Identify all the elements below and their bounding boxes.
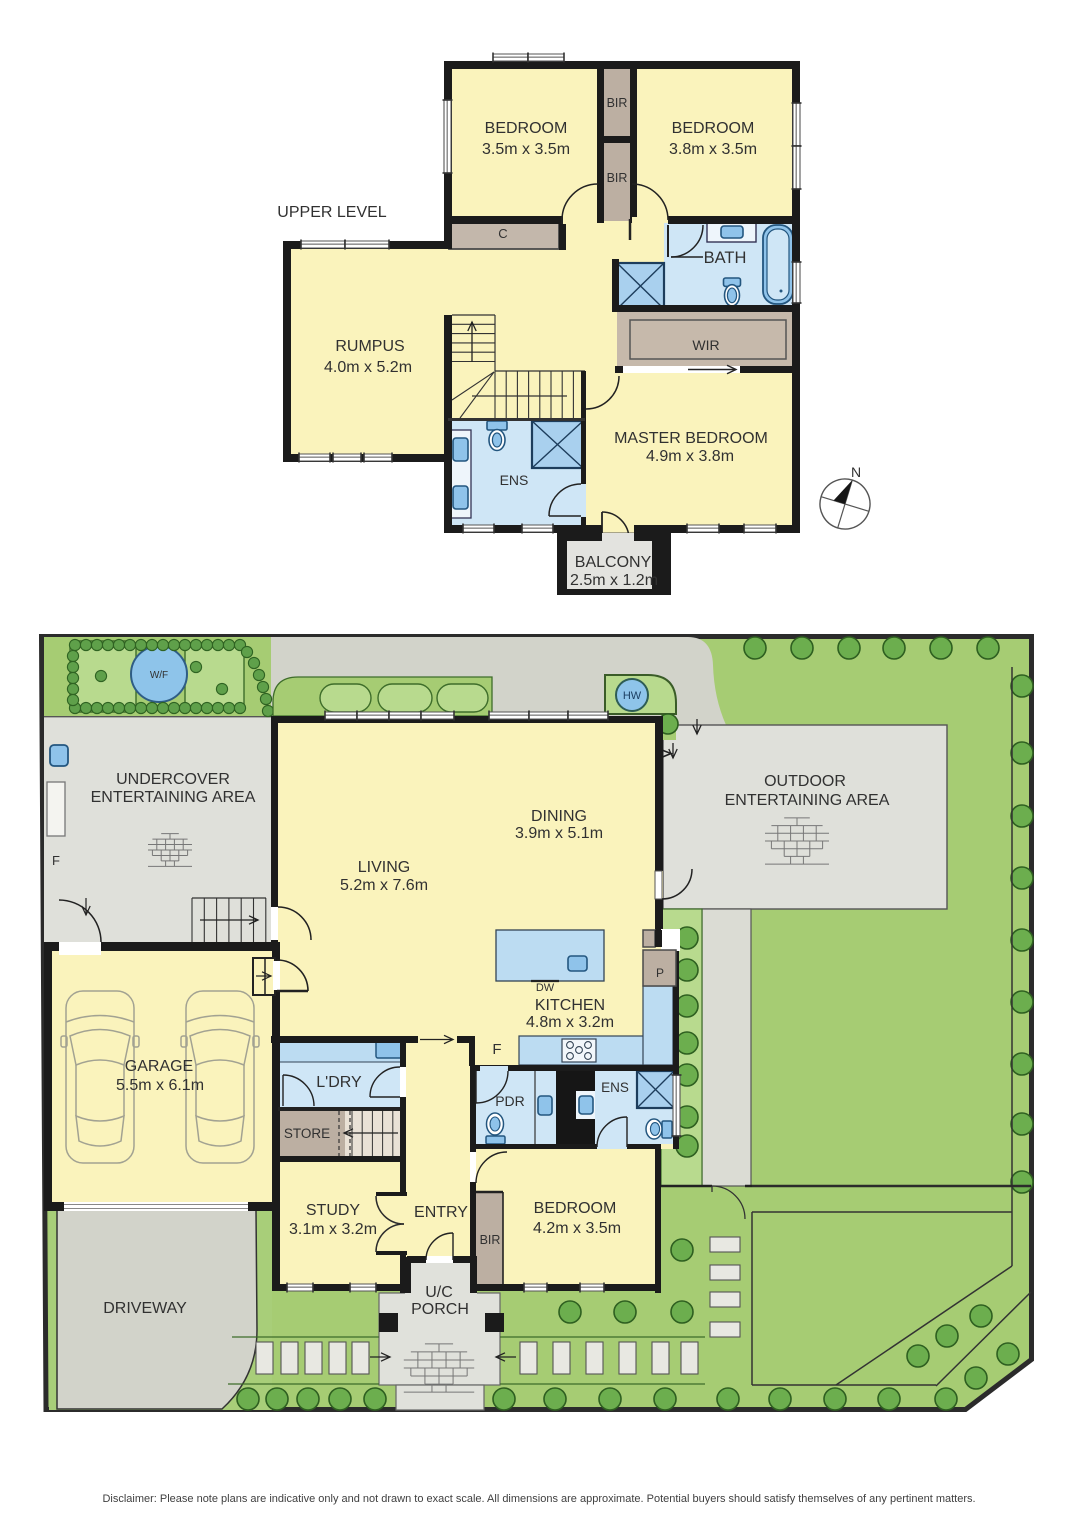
svg-text:ENTRY: ENTRY (414, 1204, 468, 1221)
svg-text:MASTER BEDROOM: MASTER BEDROOM (614, 430, 768, 447)
svg-text:KITCHEN: KITCHEN (535, 997, 605, 1014)
svg-text:WIR: WIR (692, 337, 719, 353)
svg-text:4.9m x 3.8m: 4.9m x 3.8m (646, 448, 734, 465)
svg-text:5.2m x 7.6m: 5.2m x 7.6m (340, 877, 428, 894)
svg-text:4.8m x 3.2m: 4.8m x 3.2m (526, 1014, 614, 1031)
svg-text:BIR: BIR (607, 96, 628, 110)
svg-text:BEDROOM: BEDROOM (672, 120, 755, 137)
svg-text:GARAGE: GARAGE (125, 1058, 193, 1075)
svg-text:3.8m x 3.5m: 3.8m x 3.5m (669, 141, 757, 158)
svg-text:Disclaimer: Please note plans: Disclaimer: Please note plans are indica… (102, 1493, 975, 1505)
svg-text:3.9m x 5.1m: 3.9m x 5.1m (515, 825, 603, 842)
svg-text:OUTDOOR: OUTDOOR (764, 773, 846, 790)
svg-text:UPPER LEVEL: UPPER LEVEL (277, 204, 386, 221)
svg-text:L'DRY: L'DRY (316, 1074, 362, 1091)
svg-text:3.1m x 3.2m: 3.1m x 3.2m (289, 1221, 377, 1238)
svg-text:BATH: BATH (704, 249, 747, 267)
svg-text:3.5m x 3.5m: 3.5m x 3.5m (482, 141, 570, 158)
svg-text:HW: HW (623, 690, 642, 702)
svg-text:DRIVEWAY: DRIVEWAY (103, 1300, 187, 1317)
svg-text:DINING: DINING (531, 808, 587, 825)
svg-text:U/C: U/C (425, 1284, 453, 1301)
svg-text:W/F: W/F (150, 670, 168, 681)
svg-text:N: N (851, 464, 861, 480)
svg-text:UNDERCOVER: UNDERCOVER (116, 771, 230, 788)
svg-text:PDR: PDR (495, 1093, 525, 1109)
svg-text:STORE: STORE (284, 1126, 330, 1141)
svg-text:PORCH: PORCH (411, 1301, 469, 1318)
svg-text:4.2m x 3.5m: 4.2m x 3.5m (533, 1220, 621, 1237)
svg-text:BIR: BIR (607, 171, 628, 185)
svg-text:DW: DW (536, 982, 555, 994)
svg-text:STUDY: STUDY (306, 1202, 361, 1219)
svg-text:RUMPUS: RUMPUS (335, 338, 404, 355)
svg-text:ENS: ENS (601, 1080, 629, 1095)
svg-text:2.5m x 1.2m: 2.5m x 1.2m (570, 572, 658, 589)
svg-text:F: F (52, 853, 60, 868)
svg-text:BALCONY: BALCONY (575, 554, 652, 571)
svg-text:4.0m x 5.2m: 4.0m x 5.2m (324, 359, 412, 376)
svg-text:5.5m x 6.1m: 5.5m x 6.1m (116, 1077, 204, 1094)
svg-text:BIR: BIR (480, 1233, 501, 1247)
svg-text:C: C (498, 226, 507, 241)
svg-text:F: F (492, 1041, 501, 1058)
svg-text:ENTERTAINING AREA: ENTERTAINING AREA (91, 789, 256, 806)
svg-text:LIVING: LIVING (358, 859, 410, 876)
svg-text:P: P (656, 966, 664, 980)
svg-text:ENS: ENS (500, 472, 529, 488)
svg-text:BEDROOM: BEDROOM (534, 1200, 617, 1217)
svg-text:BEDROOM: BEDROOM (485, 120, 568, 137)
svg-text:ENTERTAINING AREA: ENTERTAINING AREA (725, 792, 890, 809)
